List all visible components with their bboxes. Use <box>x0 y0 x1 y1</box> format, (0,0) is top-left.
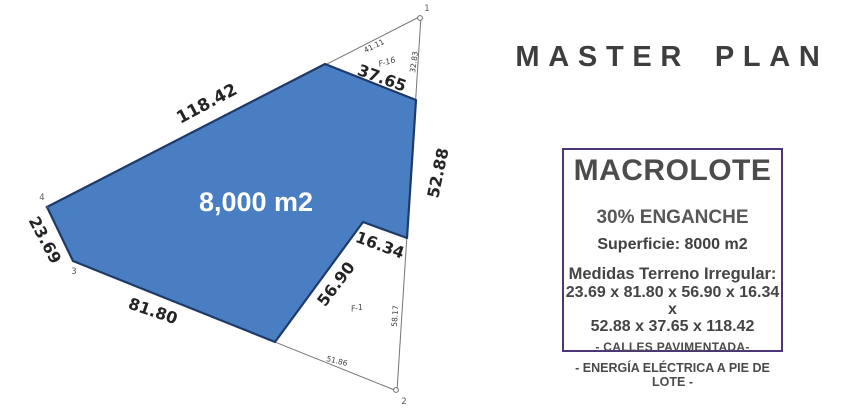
info-box-enganche: 30% ENGANCHE <box>564 207 781 229</box>
lot-survey-diagram: 1 2 3 4 118.42 37.65 52.88 16.34 56.90 8… <box>0 0 470 416</box>
vertex-3-label: 3 <box>71 267 76 277</box>
vertex-4-label: 4 <box>39 193 44 203</box>
info-box-title: MACROLOTE <box>564 154 781 188</box>
page-title: MASTER PLAN <box>502 41 842 74</box>
vertex-2-marker <box>394 388 399 393</box>
vertex-2-label: 2 <box>401 397 406 407</box>
edge-label-52-88: 52.88 <box>423 146 452 199</box>
parcel-label-f16: F-16 <box>377 55 396 68</box>
info-box-medidas-line2: 52.88 x 37.65 x 118.42 <box>564 318 781 335</box>
info-box-medidas-line1: 23.69 x 81.80 x 56.90 x 16.34 x <box>564 284 781 318</box>
lot-area-label: 8,000 m2 <box>199 187 313 217</box>
vertex-1-label: 1 <box>424 4 429 14</box>
vertex-4-marker <box>46 206 49 209</box>
edge-label-58-17: 58.17 <box>390 305 400 327</box>
info-box-superficie: Superficie: 8000 m2 <box>564 236 781 254</box>
edge-label-51-86: 51.86 <box>325 354 348 368</box>
info-box-medidas-heading: Medidas Terreno Irregular: <box>564 265 781 283</box>
master-plan-page: 1 2 3 4 118.42 37.65 52.88 16.34 56.90 8… <box>0 0 860 416</box>
macrolote-info-box: MACROLOTE 30% ENGANCHE Superficie: 8000 … <box>562 148 783 352</box>
info-box-calles: - CALLES PAVIMENTADA- <box>564 341 781 354</box>
info-box-energia: - ENERGÍA ELÉCTRICA A PIE DE LOTE - <box>564 361 781 389</box>
parcel-label-f1: F-1 <box>350 303 364 314</box>
vertex-1-marker <box>418 16 423 21</box>
edge-label-32-83: 32.83 <box>408 51 420 74</box>
